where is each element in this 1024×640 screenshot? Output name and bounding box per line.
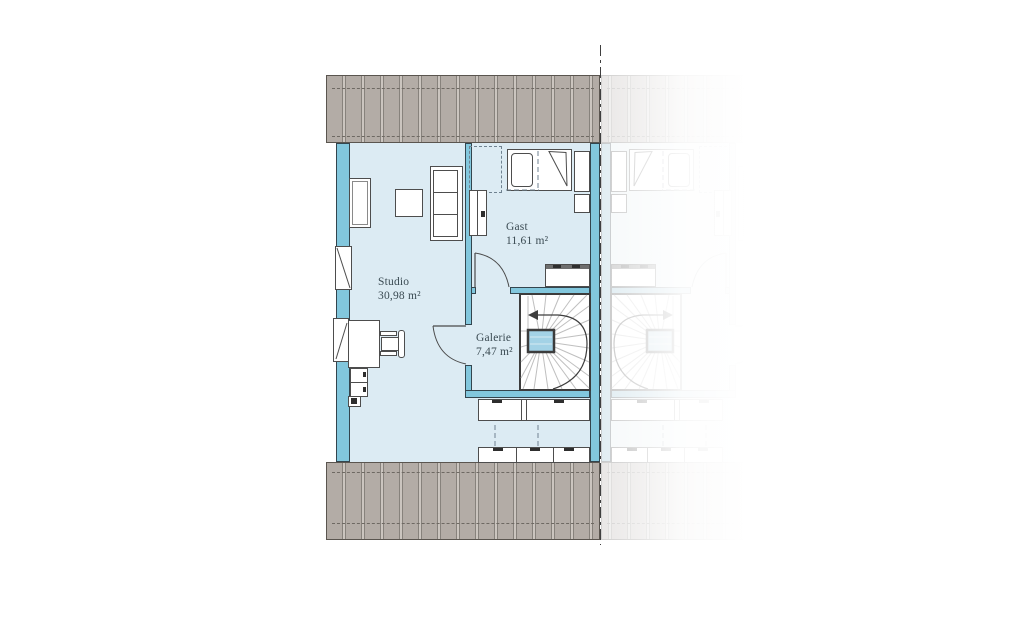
axis-layer: [0, 0, 1024, 640]
floor-plan-canvas: Studio 30,98 m² Gast 11,61 m² Galerie 7,…: [0, 0, 1024, 640]
